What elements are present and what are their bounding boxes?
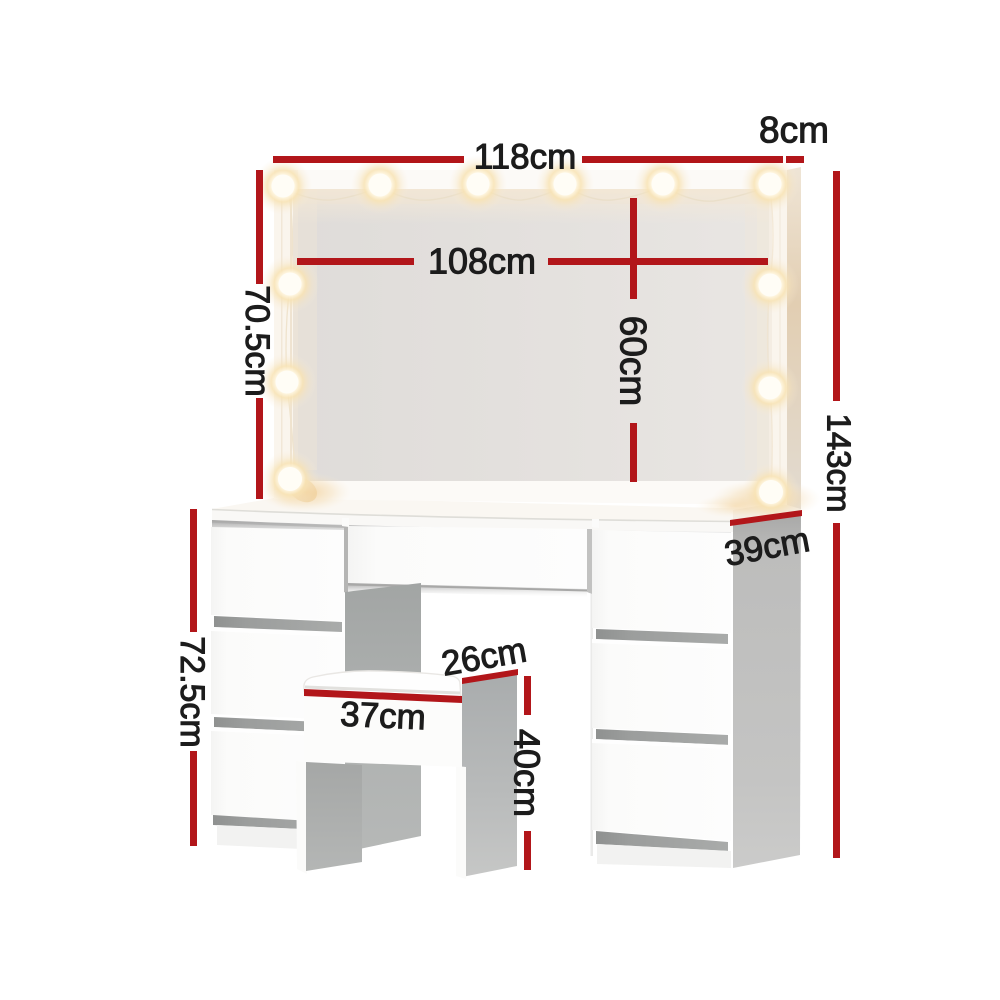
svg-text:37cm: 37cm [339, 695, 426, 738]
svg-text:118cm: 118cm [474, 138, 576, 177]
svg-text:40cm: 40cm [507, 729, 548, 817]
svg-text:72.5cm: 72.5cm [173, 636, 211, 748]
svg-text:60cm: 60cm [613, 316, 654, 406]
svg-text:108cm: 108cm [428, 241, 536, 282]
svg-text:143cm: 143cm [821, 413, 858, 512]
svg-text:8cm: 8cm [759, 110, 829, 151]
svg-text:70.5cm: 70.5cm [238, 285, 276, 397]
